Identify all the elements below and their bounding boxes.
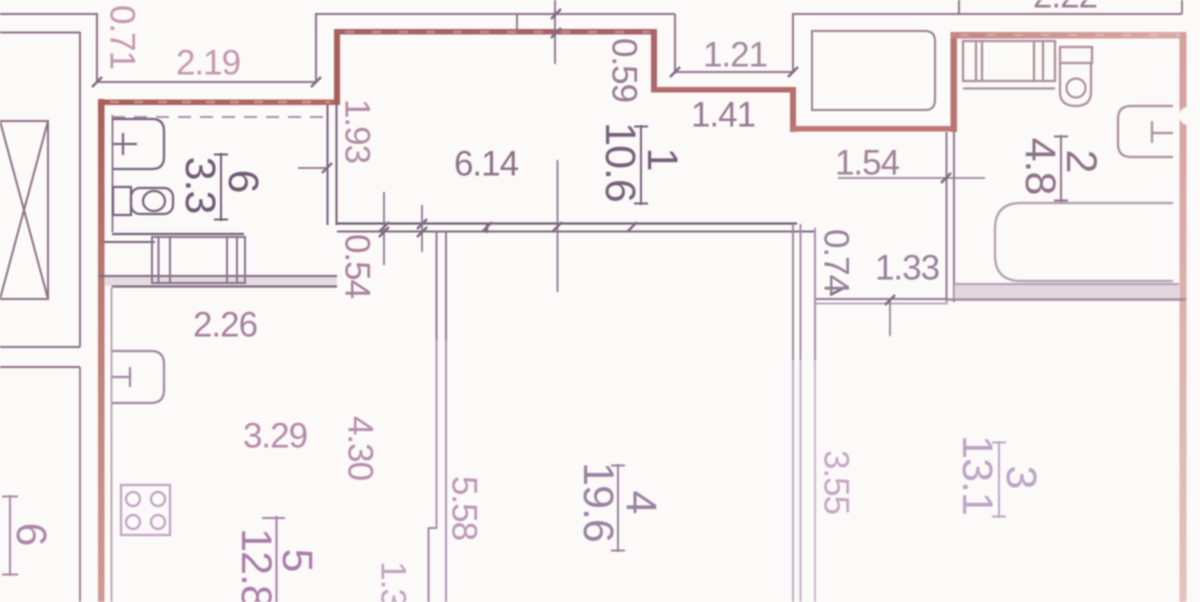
- svg-text:10.6: 10.6: [596, 122, 644, 202]
- svg-text:1.21: 1.21: [703, 36, 767, 75]
- svg-text:0.54: 0.54: [338, 234, 377, 299]
- svg-text:13.1: 13.1: [953, 435, 1001, 515]
- svg-text:0.59: 0.59: [605, 38, 644, 102]
- svg-text:5.58: 5.58: [445, 476, 484, 540]
- svg-text:2.19: 2.19: [176, 44, 240, 83]
- svg-text:5: 5: [273, 549, 321, 572]
- svg-text:3.55: 3.55: [817, 450, 856, 514]
- svg-text:6: 6: [7, 523, 55, 546]
- svg-text:0.71: 0.71: [103, 5, 142, 69]
- svg-text:19.6: 19.6: [574, 462, 622, 542]
- svg-text:2: 2: [1057, 150, 1105, 173]
- svg-text:6.14: 6.14: [454, 145, 519, 184]
- svg-text:4: 4: [617, 491, 665, 514]
- svg-text:12.8: 12.8: [232, 528, 280, 602]
- svg-text:6: 6: [219, 170, 267, 193]
- svg-text:0.74: 0.74: [817, 229, 856, 294]
- svg-text:1.3: 1.3: [374, 561, 413, 602]
- svg-text:3.3: 3.3: [176, 157, 224, 214]
- svg-text:4.8: 4.8: [1016, 138, 1064, 195]
- svg-text:1: 1: [638, 148, 686, 171]
- svg-text:3: 3: [997, 466, 1045, 489]
- svg-text:1.33: 1.33: [875, 249, 939, 288]
- svg-text:4.30: 4.30: [341, 416, 380, 481]
- svg-text:2.26: 2.26: [193, 306, 257, 345]
- svg-text:3.29: 3.29: [243, 417, 307, 456]
- svg-text:1.41: 1.41: [691, 96, 755, 135]
- svg-text:1.93: 1.93: [338, 99, 377, 163]
- svg-text:1.54: 1.54: [835, 144, 900, 183]
- svg-text:2.22: 2.22: [1033, 0, 1097, 16]
